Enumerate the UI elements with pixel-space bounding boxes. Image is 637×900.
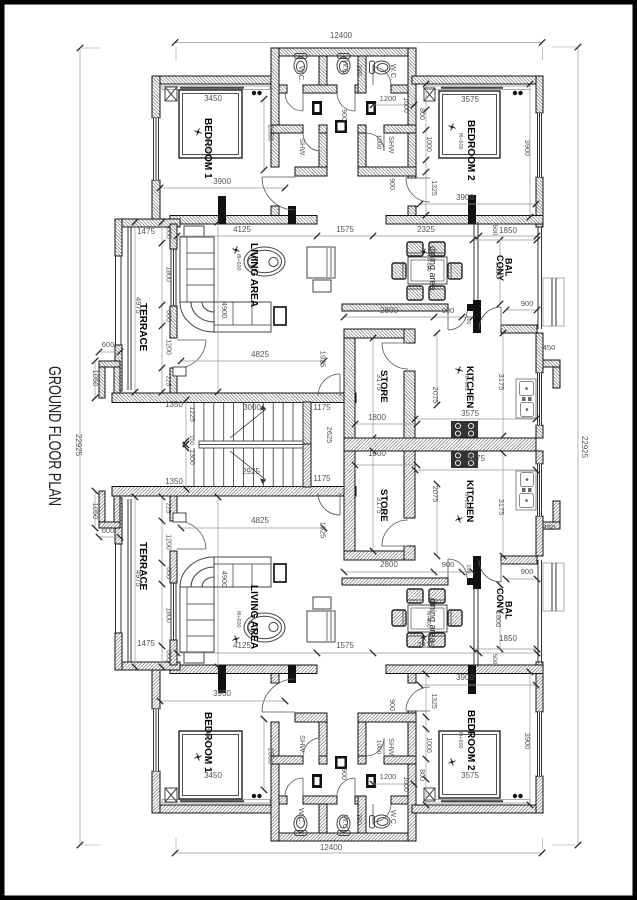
svg-text:W.C.: W.C. [297,66,306,82]
svg-text:1325: 1325 [430,180,437,196]
svg-text:2800: 2800 [380,560,398,569]
svg-text:3900: 3900 [456,673,474,682]
svg-text:3575: 3575 [461,95,479,104]
svg-text:1800: 1800 [368,449,386,458]
svg-text:2925: 2925 [242,467,260,476]
svg-text:225: 225 [165,503,172,514]
svg-text:2550: 2550 [267,748,276,765]
svg-text:W.C.: W.C. [389,810,398,826]
svg-text:W.C.: W.C. [297,808,306,824]
svg-text:600: 600 [165,567,172,579]
svg-text:1350: 1350 [165,477,183,486]
svg-text:900: 900 [442,560,455,569]
svg-text:LIVING AREA: LIVING AREA [248,585,259,649]
svg-text:1575: 1575 [336,641,354,650]
svg-text:1175: 1175 [313,403,331,412]
svg-text:W.C: W.C [341,815,350,830]
svg-text:ffl+600: ffl+600 [457,732,463,749]
svg-text:600: 600 [102,340,115,349]
svg-text:4975: 4975 [134,297,143,314]
svg-text:3175: 3175 [375,374,384,391]
svg-text:LIVING AREA: LIVING AREA [248,243,259,307]
svg-text:SHW: SHW [387,136,396,154]
svg-text:900: 900 [521,299,534,308]
svg-text:900: 900 [442,306,455,315]
svg-text:1225: 1225 [188,406,195,422]
svg-text:1575: 1575 [336,225,354,234]
svg-text:SHW.: SHW. [298,138,307,157]
svg-text:380: 380 [355,813,362,825]
svg-text:3000: 3000 [243,403,261,412]
svg-text:3900: 3900 [523,733,532,750]
svg-text:ffl+600: ffl+600 [204,137,210,154]
svg-text:1000: 1000 [425,737,432,753]
svg-text:1800: 1800 [368,413,386,422]
svg-text:1050: 1050 [91,503,100,520]
svg-text:4125: 4125 [233,225,251,234]
svg-text:600: 600 [165,310,172,322]
svg-text:3575: 3575 [467,454,485,463]
svg-text:1050: 1050 [91,370,100,387]
svg-text:3900: 3900 [456,193,474,202]
svg-text:800: 800 [418,108,425,120]
svg-text:3450: 3450 [204,771,222,780]
svg-text:SHW: SHW [387,738,396,756]
svg-text:ffl+600: ffl+600 [457,133,463,150]
svg-text:1200: 1200 [165,534,172,550]
svg-text:1800: 1800 [165,266,172,282]
svg-text:2800: 2800 [380,306,398,315]
svg-text:3175: 3175 [497,374,506,391]
svg-text:4900: 4900 [220,571,229,588]
svg-text:2550: 2550 [267,125,276,142]
svg-text:4975: 4975 [134,570,143,587]
svg-text:1850: 1850 [499,226,517,235]
svg-text:1200: 1200 [380,94,397,103]
svg-text:900: 900 [388,178,395,190]
svg-text:3175: 3175 [375,497,384,514]
svg-text:3175: 3175 [497,499,506,516]
svg-text:900: 900 [521,567,534,576]
svg-text:3900: 3900 [523,140,532,157]
svg-text:3575: 3575 [461,409,479,418]
svg-text:600: 600 [102,526,115,535]
svg-text:22925: 22925 [74,434,83,457]
svg-text:1325: 1325 [430,693,437,709]
svg-text:ffl+600: ffl+600 [235,611,241,628]
svg-text:450: 450 [543,523,556,532]
svg-text:W.C: W.C [341,60,350,75]
svg-text:4125: 4125 [233,641,251,650]
svg-text:1800: 1800 [494,262,503,279]
svg-text:1000: 1000 [375,135,382,150]
svg-text:900: 900 [388,699,395,711]
svg-text:225: 225 [165,376,172,387]
svg-text:3900: 3900 [213,177,231,186]
svg-text:500: 500 [491,654,498,665]
svg-text:1475: 1475 [137,227,155,236]
svg-text:900: 900 [340,768,347,780]
svg-text:3900: 3900 [213,689,231,698]
svg-text:900: 900 [340,109,347,121]
svg-text:450: 450 [543,343,556,352]
svg-text:1475: 1475 [137,639,155,648]
svg-text:100: 100 [465,315,471,324]
svg-text:2325: 2325 [417,225,435,234]
svg-text:600: 600 [165,227,172,239]
svg-text:1000: 1000 [402,776,409,792]
svg-text:W.C.: W.C. [389,64,398,80]
svg-text:1800: 1800 [494,611,503,628]
svg-text:22925: 22925 [580,436,589,459]
svg-text:800: 800 [418,769,425,781]
svg-text:1925: 1925 [319,522,328,539]
svg-text:1000: 1000 [375,740,382,755]
svg-text:3450: 3450 [204,94,222,103]
svg-text:1800: 1800 [165,607,172,623]
svg-text:ffl+600: ffl+600 [463,374,469,391]
svg-text:1000: 1000 [402,97,409,113]
svg-text:4825: 4825 [251,516,269,525]
svg-text:ffl+600: ffl+600 [425,255,431,272]
svg-text:GROUND FLOOR PLAN: GROUND FLOOR PLAN [45,366,65,506]
svg-text:3575: 3575 [461,771,479,780]
svg-text:4900: 4900 [220,302,229,319]
svg-text:1200: 1200 [165,339,172,355]
svg-text:SHW.: SHW. [298,735,307,754]
svg-text:ffl+600: ffl+600 [204,727,210,744]
svg-text:4825: 4825 [251,350,269,359]
svg-text:500: 500 [491,225,498,236]
svg-text:2625: 2625 [325,427,334,444]
svg-text:380: 380 [355,64,362,76]
svg-text:2075: 2075 [431,486,440,503]
svg-text:ffl+600: ffl+600 [463,492,469,509]
svg-text:1200: 1200 [380,772,397,781]
svg-text:1300: 1300 [188,449,195,465]
svg-text:1175: 1175 [313,474,331,483]
svg-text:100: 100 [188,435,194,446]
svg-text:2075: 2075 [431,387,440,404]
svg-text:1925: 1925 [319,351,328,368]
svg-text:12400: 12400 [330,31,353,40]
svg-text:ffl+600: ffl+600 [235,254,241,271]
svg-text:1850: 1850 [499,634,517,643]
svg-text:BEDROOM 2: BEDROOM 2 [465,120,476,181]
svg-text:BEDROOM 2: BEDROOM 2 [465,710,476,771]
svg-text:ffl+600: ffl+600 [425,611,431,628]
svg-text:600: 600 [165,650,172,662]
svg-text:12400: 12400 [320,843,343,852]
svg-text:100: 100 [465,564,471,573]
svg-text:1350: 1350 [165,400,183,409]
svg-text:1000: 1000 [425,136,432,152]
